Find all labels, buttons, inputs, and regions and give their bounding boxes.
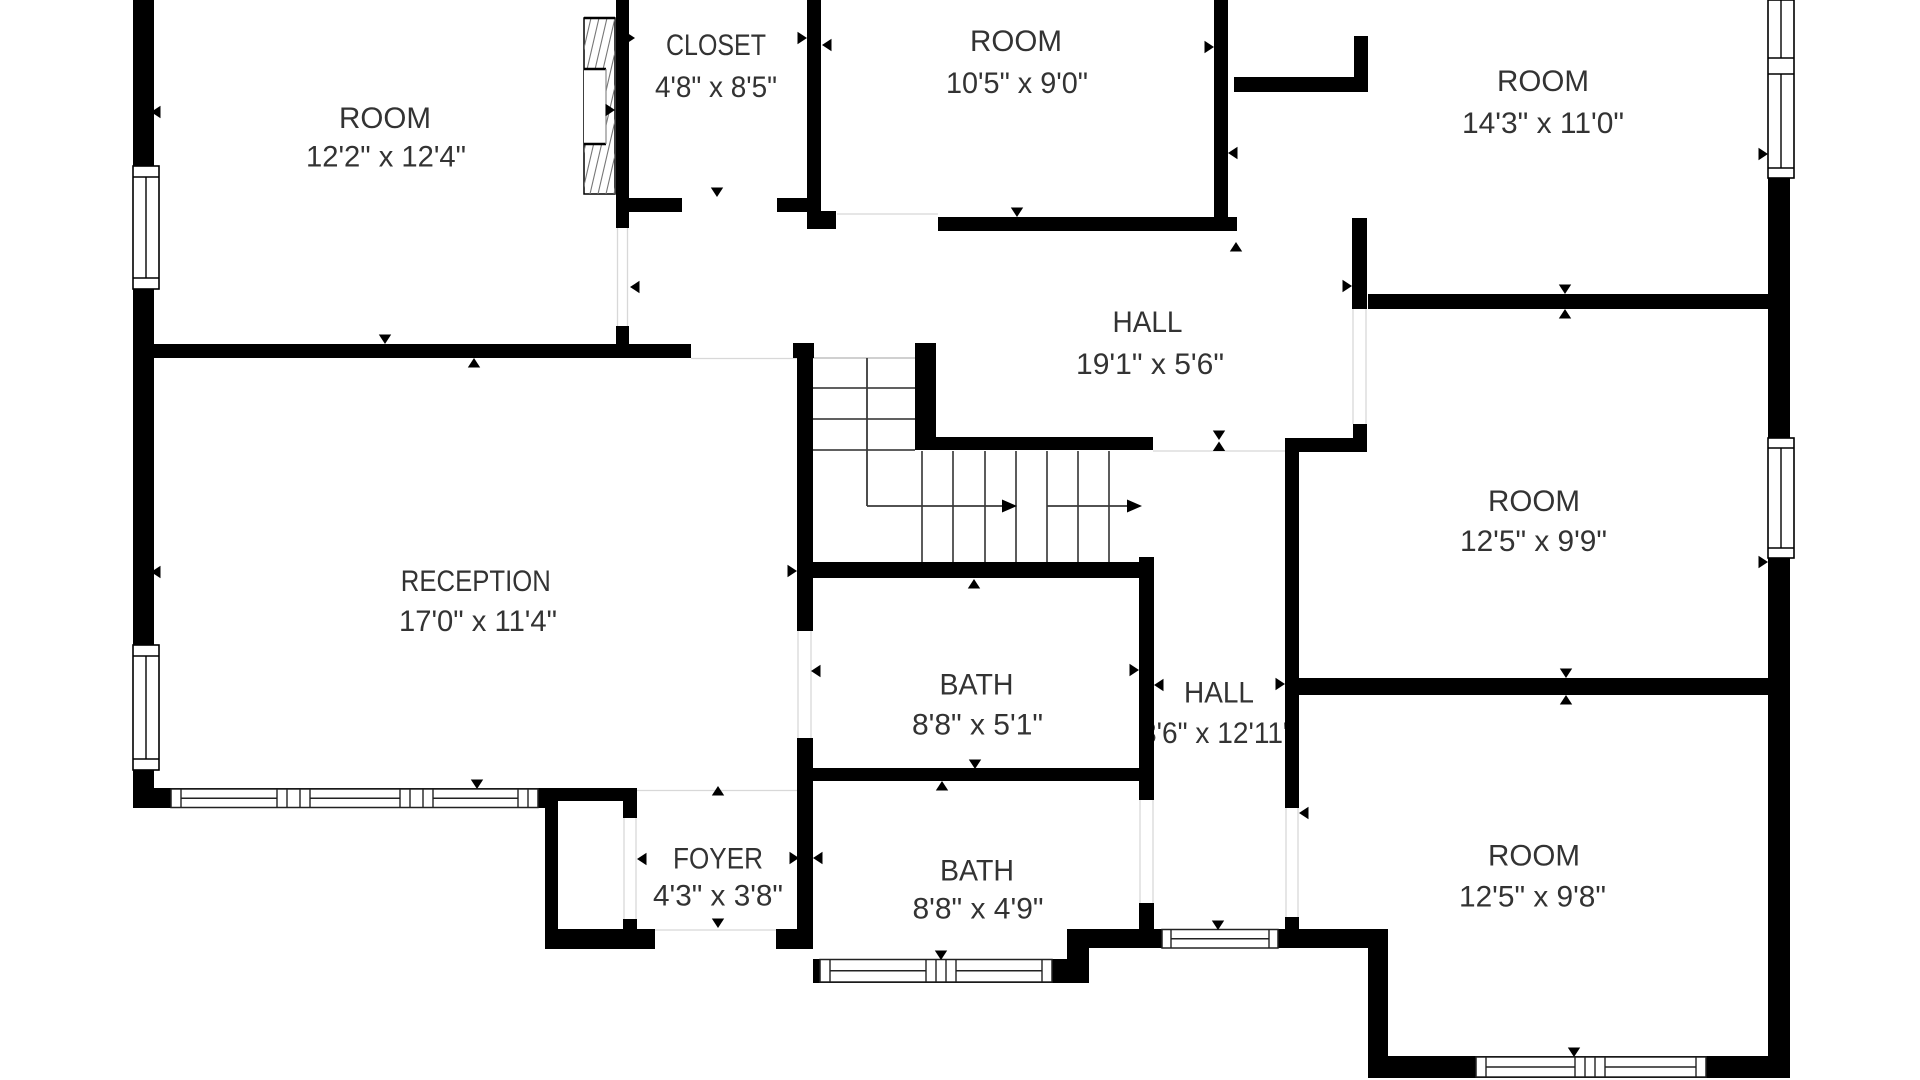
- svg-text:8'8" x 5'1": 8'8" x 5'1": [912, 709, 1043, 742]
- svg-text:4'8" x 8'5": 4'8" x 8'5": [655, 71, 777, 104]
- svg-text:14'3" x 11'0": 14'3" x 11'0": [1462, 107, 1624, 140]
- svg-text:3'6" x 12'11": 3'6" x 12'11": [1141, 717, 1293, 750]
- svg-text:HALL: HALL: [1184, 677, 1254, 710]
- svg-text:HALL: HALL: [1113, 306, 1183, 339]
- svg-text:BATH: BATH: [940, 855, 1014, 888]
- svg-text:8'8" x 4'9": 8'8" x 4'9": [913, 893, 1044, 926]
- svg-text:ROOM: ROOM: [339, 102, 431, 135]
- svg-text:4'3" x 3'8": 4'3" x 3'8": [653, 880, 783, 913]
- svg-text:12'5" x 9'8": 12'5" x 9'8": [1459, 881, 1606, 914]
- svg-text:10'5" x 9'0": 10'5" x 9'0": [946, 67, 1088, 100]
- svg-text:ROOM: ROOM: [970, 25, 1062, 58]
- svg-text:12'5" x 9'9": 12'5" x 9'9": [1460, 525, 1607, 558]
- svg-text:ROOM: ROOM: [1488, 485, 1580, 518]
- svg-text:12'2" x 12'4": 12'2" x 12'4": [306, 141, 466, 174]
- svg-text:RECEPTION: RECEPTION: [401, 565, 551, 598]
- svg-text:CLOSET: CLOSET: [666, 29, 766, 62]
- svg-text:ROOM: ROOM: [1488, 840, 1580, 873]
- svg-text:17'0" x 11'4": 17'0" x 11'4": [399, 605, 557, 638]
- svg-text:ROOM: ROOM: [1497, 65, 1589, 98]
- svg-text:19'1" x 5'6": 19'1" x 5'6": [1076, 348, 1224, 381]
- svg-text:FOYER: FOYER: [673, 843, 763, 876]
- svg-text:BATH: BATH: [940, 669, 1014, 702]
